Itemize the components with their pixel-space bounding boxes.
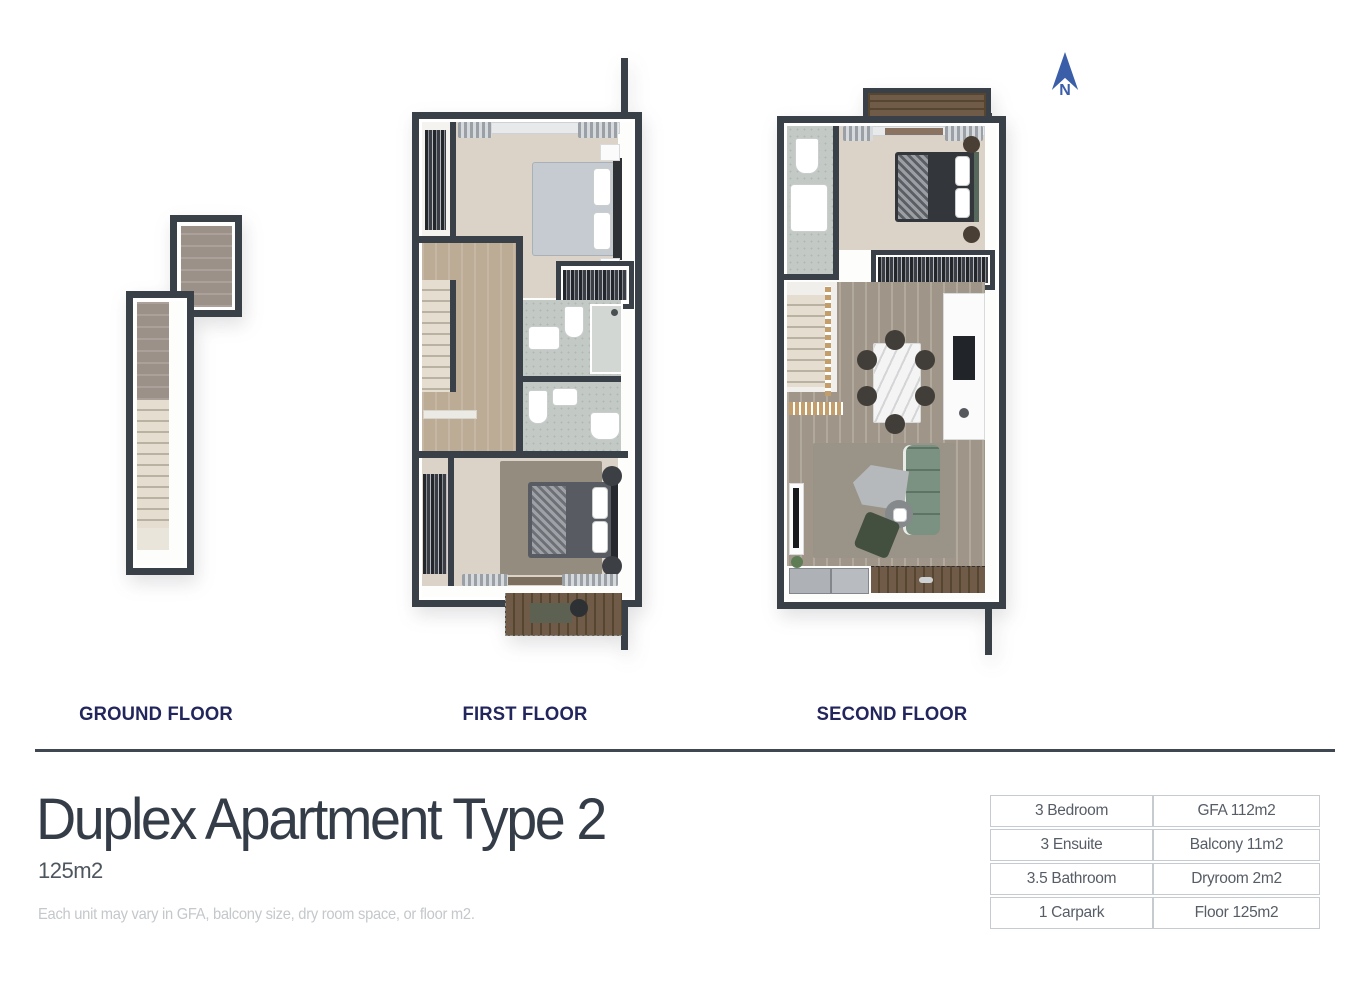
bed3: [895, 152, 979, 222]
ground-floor-label: GROUND FLOOR: [49, 704, 262, 726]
bedroom3-headboard-wall: [885, 128, 943, 135]
bed1-pillow-bottom: [593, 212, 611, 250]
bedroom2-top-wall: [412, 451, 628, 458]
kitchen-appliance: [953, 336, 975, 380]
dining-chair-5: [885, 330, 905, 350]
spec-cell-bedroom: 3 Bedroom: [990, 795, 1153, 827]
balcony1-chair: [570, 599, 588, 617]
disclaimer-text: Each unit may vary in GFA, balcony size,…: [38, 906, 475, 924]
shower1-head: [611, 309, 618, 316]
side-table-book: [893, 508, 907, 522]
closet-nook-clothes: [425, 130, 446, 230]
wardrobe2-wall: [448, 458, 454, 586]
bedroom3-curtain-left: [843, 126, 873, 141]
dining-chair-3: [915, 350, 935, 370]
bathroom-divider-wall: [523, 376, 621, 382]
balcony2: [871, 566, 985, 593]
wardrobe2: [423, 474, 447, 574]
stairs2: [787, 295, 825, 387]
nightstand1: [600, 144, 620, 161]
first-floor-plan: [410, 58, 630, 658]
bed3-pillow-bottom: [955, 188, 970, 218]
balcony1: [505, 593, 622, 636]
corridor-landing-top: [137, 302, 169, 400]
closet-mid-clothes: [563, 270, 627, 300]
dining-chair-1: [857, 350, 877, 370]
bed3-table-top: [963, 136, 980, 153]
bed2-throw: [532, 486, 566, 554]
closet-nook-wall: [450, 122, 456, 236]
tv: [793, 488, 799, 548]
bedroom2-curtain-left: [462, 574, 508, 586]
bed2-pillow-bottom: [592, 521, 608, 553]
window-threshold: [508, 577, 562, 585]
sink2: [552, 388, 578, 406]
bed2-headboard: [611, 482, 618, 558]
page-subtitle: 125m2: [38, 858, 103, 884]
stairs1: [422, 280, 450, 392]
first-floor-label: FIRST FLOOR: [418, 704, 631, 726]
divider-line: [35, 749, 1335, 752]
bed3-table-bottom: [963, 226, 980, 243]
bed1: [532, 162, 622, 256]
hall-bath-wall: [516, 236, 523, 456]
toilet2: [528, 390, 548, 424]
bed2-table-bottom: [602, 556, 622, 576]
stair-corridor: [126, 291, 194, 575]
bed2-pillow-top: [592, 487, 608, 519]
stair-railing: [825, 286, 831, 396]
corridor-stairs: [137, 400, 169, 528]
plant: [791, 556, 803, 568]
toilet3: [590, 412, 620, 440]
bedroom2-curtain-right: [562, 574, 618, 586]
spec-cell-floor: Floor 125m2: [1153, 897, 1320, 929]
dining-table: [873, 343, 921, 423]
bed2-table-top: [602, 466, 622, 486]
bed3-throw: [898, 155, 928, 219]
curtain-left: [458, 122, 492, 138]
closet3-clothes: [878, 257, 988, 283]
balcony1-desk: [530, 603, 572, 623]
corridor-landing-bottom: [137, 528, 169, 550]
toilet1: [564, 306, 584, 338]
spec-cell-ensuite: 3 Ensuite: [990, 829, 1153, 861]
bed3-pillow-top: [955, 156, 970, 186]
sink1: [528, 326, 560, 350]
stair-divider-wall: [450, 280, 456, 392]
spec-cell-balcony: Balcony 11m2: [1153, 829, 1320, 861]
bed3-accent: [974, 152, 979, 222]
north-label: N: [1048, 82, 1082, 100]
hall-top-wall: [412, 236, 517, 243]
spec-table: 3 Bedroom GFA 112m2 3 Ensuite Balcony 11…: [990, 795, 1320, 929]
second-floor-label: SECOND FLOOR: [785, 704, 998, 726]
ground-floor-plan: [126, 215, 230, 561]
spec-cell-carpark: 1 Carpark: [990, 897, 1153, 929]
page-title: Duplex Apartment Type 2: [36, 786, 605, 853]
hall-bench: [423, 410, 477, 419]
bathroom2-bottom-wall: [777, 274, 839, 280]
entry-mat-1: [789, 568, 831, 594]
spec-cell-gfa: GFA 112m2: [1153, 795, 1320, 827]
bed1-pillow-top: [593, 168, 611, 206]
dining-chair-6: [885, 414, 905, 434]
bed2: [528, 482, 618, 558]
floorplan-page: N GROUND FLOOR FIRST FLOOR SECOND FLOOR …: [0, 0, 1368, 982]
spec-cell-bathroom: 3.5 Bathroom: [990, 863, 1153, 895]
north-arrow: N: [1048, 52, 1082, 100]
bed1-headboard: [613, 158, 622, 260]
dining-chair-2: [857, 386, 877, 406]
entry-mat-2: [831, 568, 869, 594]
vanity-sink: [790, 184, 828, 232]
kitchen-small-appliance: [959, 408, 969, 418]
curtain-right: [578, 122, 618, 138]
second-floor-plan: [775, 88, 997, 663]
slat-bench: [789, 402, 843, 415]
toilet4: [795, 138, 819, 174]
dining-chair-4: [915, 386, 935, 406]
shower1: [590, 304, 623, 374]
balcony2-drain: [919, 577, 933, 583]
spec-cell-dryroom: Dryroom 2m2: [1153, 863, 1320, 895]
